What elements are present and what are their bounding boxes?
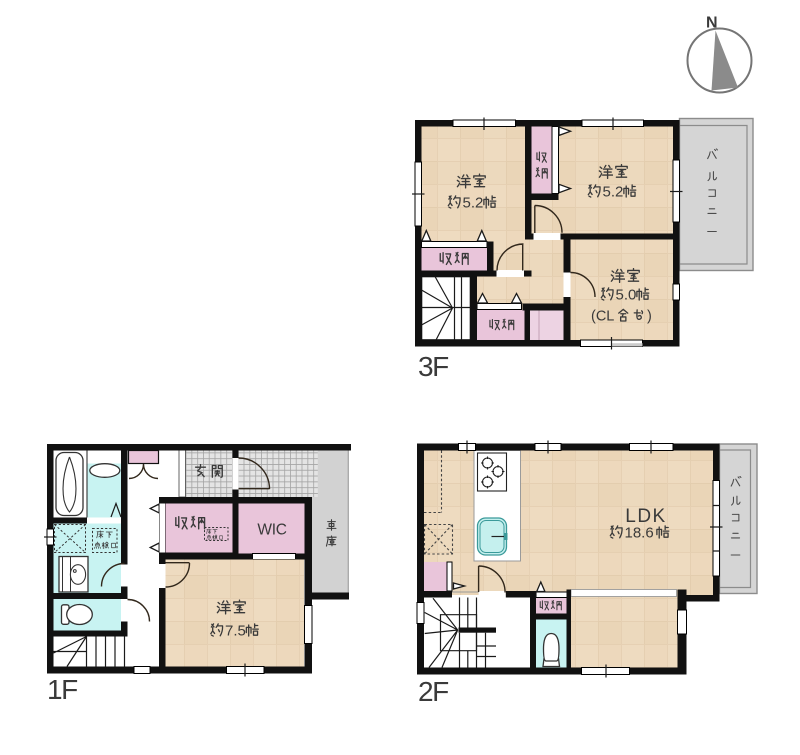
svg-text:(CL: (CL [591, 309, 614, 325]
svg-text:7.5: 7.5 [225, 623, 246, 640]
svg-text:18.6: 18.6 [625, 525, 654, 542]
svg-text:2F: 2F [418, 676, 448, 707]
svg-text:5.0: 5.0 [616, 287, 637, 304]
svg-text:WIC: WIC [257, 522, 286, 539]
svg-text:3F: 3F [418, 351, 448, 382]
svg-text:1F: 1F [47, 674, 77, 705]
svg-text:5.2: 5.2 [463, 195, 484, 212]
svg-text:): ) [647, 309, 652, 325]
svg-text:N: N [706, 15, 718, 32]
svg-text:5.2: 5.2 [603, 184, 624, 201]
